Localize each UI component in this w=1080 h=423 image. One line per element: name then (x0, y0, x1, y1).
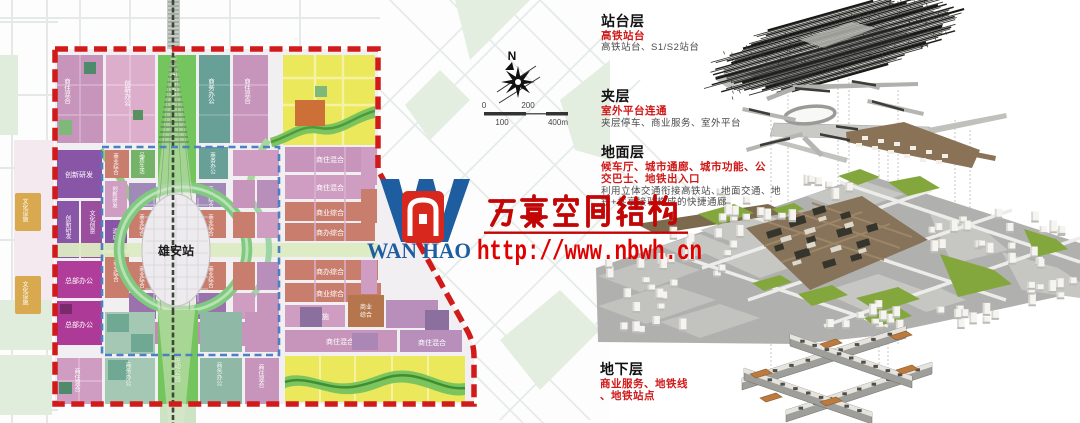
svg-text:、地铁站点: 、地铁站点 (600, 389, 655, 402)
svg-text:http://www.nbwh.cn: http://www.nbwh.cn (477, 237, 702, 268)
svg-text:总部办公: 总部办公 (65, 320, 93, 329)
svg-text:100: 100 (495, 118, 509, 127)
svg-text:高铁站台: 高铁站台 (601, 29, 645, 42)
svg-text:创新研发: 创新研发 (64, 214, 71, 240)
svg-text:高铁站台、S1/S2站台: 高铁站台、S1/S2站台 (601, 41, 699, 53)
svg-text:商住混合: 商住混合 (257, 363, 264, 389)
svg-text:WAN HAO: WAN HAO (367, 238, 471, 263)
svg-text:地下层: 地下层 (600, 361, 644, 377)
svg-text:商住混合: 商住混合 (316, 155, 344, 164)
svg-text:利用立体交通衔接高铁站、地面交通、地: 利用立体交通衔接高铁站、地面交通、地 (601, 185, 781, 197)
svg-text:创新研发: 创新研发 (111, 185, 118, 210)
svg-text:商业综合: 商业综合 (112, 152, 119, 177)
svg-text:商住混合: 商住混合 (418, 338, 446, 347)
svg-text:200: 200 (521, 101, 535, 110)
svg-text:总部办公: 总部办公 (65, 276, 93, 285)
svg-text:品质生活: 品质生活 (138, 152, 145, 176)
svg-text:0: 0 (482, 101, 487, 110)
svg-text:文化设施: 文化设施 (21, 197, 28, 223)
svg-text:商办综合: 商办综合 (316, 267, 344, 276)
svg-text:商业综合: 商业综合 (316, 289, 344, 298)
svg-text:N: N (508, 49, 517, 63)
svg-text:夹层停车、商业服务、室外平台: 夹层停车、商业服务、室外平台 (601, 117, 741, 129)
svg-text:400m: 400m (548, 118, 568, 127)
svg-text:候车厅、城市通廊、城市功能、公: 候车厅、城市通廊、城市功能、公 (601, 160, 766, 173)
svg-text:商办综合: 商办综合 (316, 228, 344, 237)
svg-text:商住混合: 商住混合 (316, 183, 344, 192)
svg-text:创新研发: 创新研发 (65, 170, 93, 179)
svg-text:站台层: 站台层 (601, 13, 645, 29)
svg-text:文化设施: 文化设施 (21, 280, 28, 306)
svg-text:商务办公: 商务办公 (124, 361, 131, 386)
svg-text:商务办公: 商务办公 (215, 361, 222, 386)
svg-text:地面层: 地面层 (601, 144, 645, 160)
svg-text:商务办公: 商务办公 (209, 151, 216, 175)
svg-text:雄安站: 雄安站 (157, 243, 194, 258)
svg-text:商住混合: 商住混合 (73, 367, 80, 393)
svg-text:商业: 商业 (360, 303, 372, 311)
svg-text:室外平台连通: 室外平台连通 (601, 104, 667, 117)
svg-text:夹层: 夹层 (601, 88, 630, 104)
svg-text:商业综合: 商业综合 (316, 208, 344, 217)
svg-text:商业服务、地铁线: 商业服务、地铁线 (600, 377, 688, 390)
svg-text:文化创意: 文化创意 (88, 209, 95, 234)
svg-text:交巴士、地铁出入口: 交巴士、地铁出入口 (601, 172, 700, 185)
svg-text:综合: 综合 (360, 311, 372, 319)
